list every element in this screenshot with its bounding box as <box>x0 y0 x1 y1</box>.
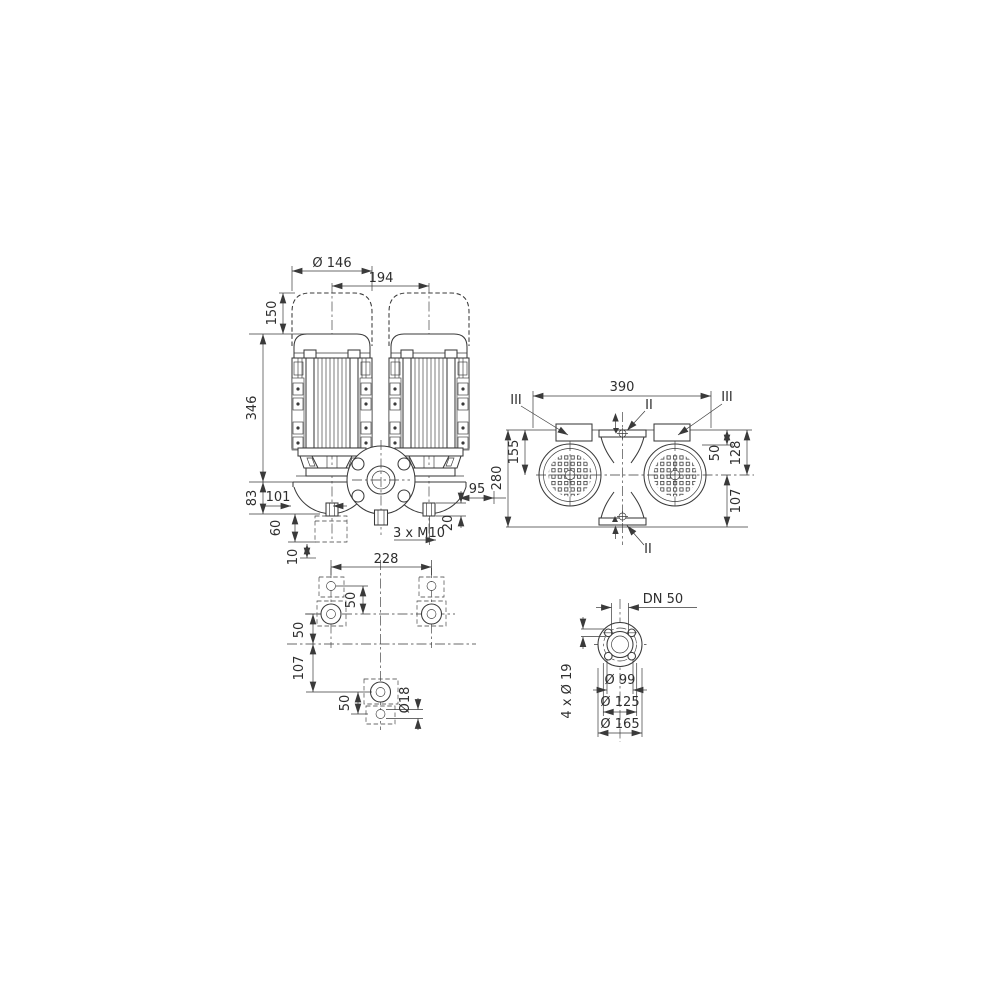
dim-motor-diameter: Ø 146 <box>312 256 351 271</box>
section-label-ii-bottom: II <box>644 542 652 557</box>
pump-dimensional-drawing: Ø 146 194 150 346 83 101 95 <box>0 0 1000 1000</box>
support-foot-dashed <box>315 516 347 542</box>
anchor-pad-rear <box>364 679 398 724</box>
dim-top-to-motor-edge: 50 <box>708 445 723 462</box>
anchor-pad-left <box>317 577 346 626</box>
dim-foot-plate: 10 <box>286 549 301 566</box>
dim-axis-to-rear-pad: 107 <box>292 656 307 681</box>
label-bolt-holes: 4 x Ø 19 <box>560 663 575 718</box>
dim-right-edge-offset: 95 <box>469 482 486 497</box>
section-label-ii-top: II <box>645 398 653 413</box>
dim-rear-hole-pitch: 50 <box>338 695 353 712</box>
dim-axis-to-bottom: 107 <box>729 489 744 514</box>
dim-left-port-offset: 101 <box>266 490 291 505</box>
technical-drawing-page: Ø 146 194 150 346 83 101 95 <box>0 0 1000 1000</box>
dim-motor-spacing: 194 <box>369 271 394 286</box>
dim-removal-space: 150 <box>265 301 280 326</box>
top-dimensions: 390 155 280 50 128 107 <box>490 380 747 527</box>
dim-anchor-hole-diameter: Ø18 <box>398 687 413 714</box>
terminal-box-right <box>654 424 690 441</box>
dim-overall-width: 280 <box>490 466 505 491</box>
dim-overall-length: 390 <box>610 380 635 395</box>
dim-top-to-motor-center: 155 <box>507 440 522 465</box>
front-view: Ø 146 194 150 346 83 101 95 <box>245 256 506 565</box>
foundation-dimensions: 228 50 50 107 50 Ø18 <box>292 552 432 730</box>
dim-pad-hole-pitch: 50 <box>344 592 359 609</box>
section-label-iii-left: III <box>510 393 522 408</box>
dim-anchor-spacing: 228 <box>374 552 399 567</box>
label-nominal-diameter: DN 50 <box>643 592 683 607</box>
dim-base-height: 83 <box>245 490 260 507</box>
flow-arrow-top <box>612 413 618 422</box>
dim-flange-outer-diameter: Ø 165 <box>600 717 639 732</box>
top-view: III II III II 390 155 280 50 1 <box>490 380 754 557</box>
dim-hub-diameter: Ø 99 <box>605 673 636 688</box>
foundation-view: 228 50 50 107 50 Ø18 <box>287 552 476 730</box>
dim-bolt-circle: Ø 125 <box>600 695 639 710</box>
flange-detail-view: DN 50 4 x Ø 19 Ø 99 Ø 125 Ø 165 <box>560 592 697 742</box>
section-label-iii-right: III <box>721 390 733 405</box>
dim-motor-height: 346 <box>245 396 260 421</box>
dim-top-to-axis: 128 <box>729 441 744 466</box>
dim-foot-height: 60 <box>269 520 284 537</box>
dim-pads-to-axis: 50 <box>292 622 307 639</box>
label-tapped-holes: 3 x M10 <box>393 526 445 541</box>
terminal-box-left <box>556 424 592 441</box>
